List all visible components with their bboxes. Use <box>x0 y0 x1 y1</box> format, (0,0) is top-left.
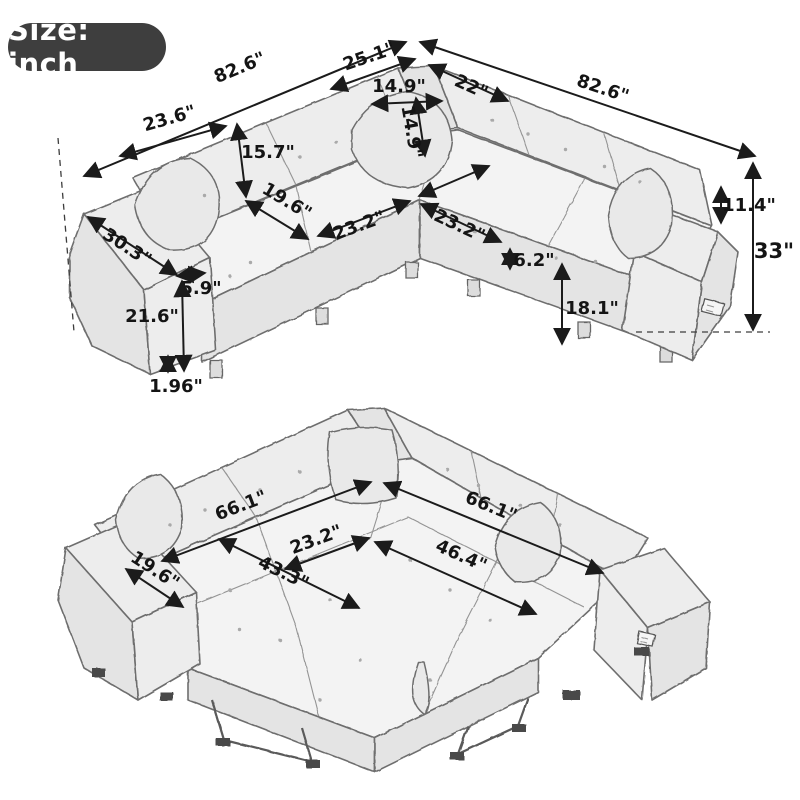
projection-dashed-left <box>58 138 74 332</box>
dim-label-backrest-height: 15.7" <box>241 142 295 163</box>
dim-label-total-height: 33" <box>754 239 794 263</box>
dim-cushion-thickness: 6.2" <box>510 249 555 271</box>
diagram-canvas: 82.6" 25.1" 14.9" 14.9" 22" 82.6" <box>0 0 800 800</box>
dim-label-back-left: 82.6" <box>211 48 269 88</box>
dim-label-leg-height: 1.96" <box>149 376 203 397</box>
dim-label-back-above-arm: 11.4" <box>722 195 776 216</box>
size-unit-label: Size: inch <box>8 13 166 81</box>
size-unit-badge: Size: inch <box>8 23 166 71</box>
dim-label-corner-back: 25.1" <box>340 38 398 75</box>
dim-label-cushion-thickness: 6.2" <box>513 250 554 271</box>
dim-label-arm-width: 5.9" <box>180 278 221 299</box>
dim-label-pillow-width: 14.9" <box>372 76 426 97</box>
product-dimension-diagram: 82.6" 25.1" 14.9" 14.9" 22" 82.6" <box>0 0 800 800</box>
dim-total-height: 33" <box>753 163 794 330</box>
bed-usb-port <box>637 631 655 646</box>
dim-label-seat-floor-height: 18.1" <box>565 298 619 319</box>
bed-throw-pillow-left <box>116 474 182 558</box>
dim-label-arm-height: 21.6" <box>125 306 179 327</box>
bed-corner-pillow <box>328 427 398 503</box>
dim-back-above-arm: 11.4" <box>721 187 776 223</box>
dim-label-back-right: 82.6" <box>574 70 632 107</box>
